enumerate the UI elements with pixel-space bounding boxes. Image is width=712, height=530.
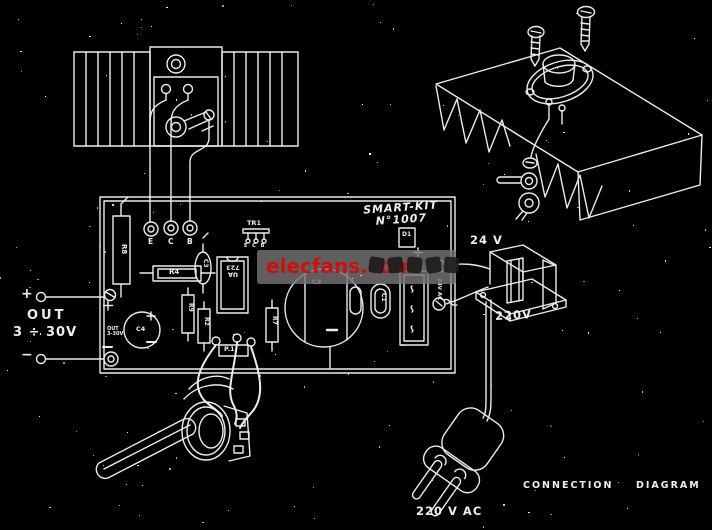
washer-stack — [497, 158, 539, 220]
watermark-glyphs — [425, 256, 442, 274]
watermark-glyphs — [368, 256, 385, 274]
pad-c-label: C — [168, 238, 174, 246]
r7-label: R7 — [271, 316, 277, 325]
resistor-r2 — [198, 302, 210, 351]
mounting-screw-right — [578, 7, 595, 52]
resistor-r7 — [266, 300, 278, 351]
heatsink-front — [74, 47, 298, 236]
r8-label: R8 — [120, 244, 127, 254]
r9-label: R9 — [187, 303, 193, 312]
tr1-label: TR1 — [247, 220, 261, 227]
transformer-220v-label: 220V — [495, 308, 532, 322]
connection-diagram: SMART-KIT N°1007 + OUT 3 ÷ 30V − 24 V 22… — [0, 0, 712, 530]
c1-label: C1 — [380, 293, 386, 302]
potentiometer — [96, 343, 260, 478]
caption-connection: CONNECTION — [523, 481, 613, 491]
p1-label: P.1 — [224, 346, 235, 353]
caption-diagram: DIAGRAM — [636, 481, 701, 491]
out-silk-label: OUT 3-30V — [107, 327, 123, 338]
r4-label: R4 — [169, 269, 179, 276]
out-range-label: 3 ÷ 30V — [13, 326, 77, 340]
out-label: OUT — [27, 309, 66, 323]
watermark-band: elecfans.com — [257, 250, 456, 284]
out-silk-line2: 3-30V — [107, 332, 123, 337]
out-minus-label: − — [21, 348, 33, 363]
ic-label-line2: 723 — [222, 264, 244, 271]
out-plus-label: + — [21, 287, 33, 302]
c3-label: C3 — [202, 259, 208, 268]
watermark-glyphs — [443, 256, 459, 273]
ic-label: UA 723 — [222, 264, 244, 278]
c4-label: C4 — [136, 326, 145, 333]
watermark-glyphs — [406, 256, 422, 273]
pad-b-label: B — [187, 238, 193, 246]
transistor-tr1 — [243, 229, 269, 243]
watermark-glyphs — [387, 256, 404, 273]
resistor-r9 — [182, 288, 194, 341]
transformer — [446, 245, 566, 421]
transformer-24v-label: 24 V — [470, 234, 503, 246]
r2-label: R2 — [203, 317, 209, 326]
heatsink-isometric — [436, 7, 702, 221]
mains-voltage-label: 220 V AC — [416, 505, 482, 517]
tr1-pins-label: E C B — [244, 244, 266, 249]
mounting-screw-left — [528, 27, 544, 67]
pad-e-label: E — [148, 238, 153, 246]
d1-label: D1 — [402, 232, 411, 238]
ic-label-line1: UA — [222, 271, 244, 278]
